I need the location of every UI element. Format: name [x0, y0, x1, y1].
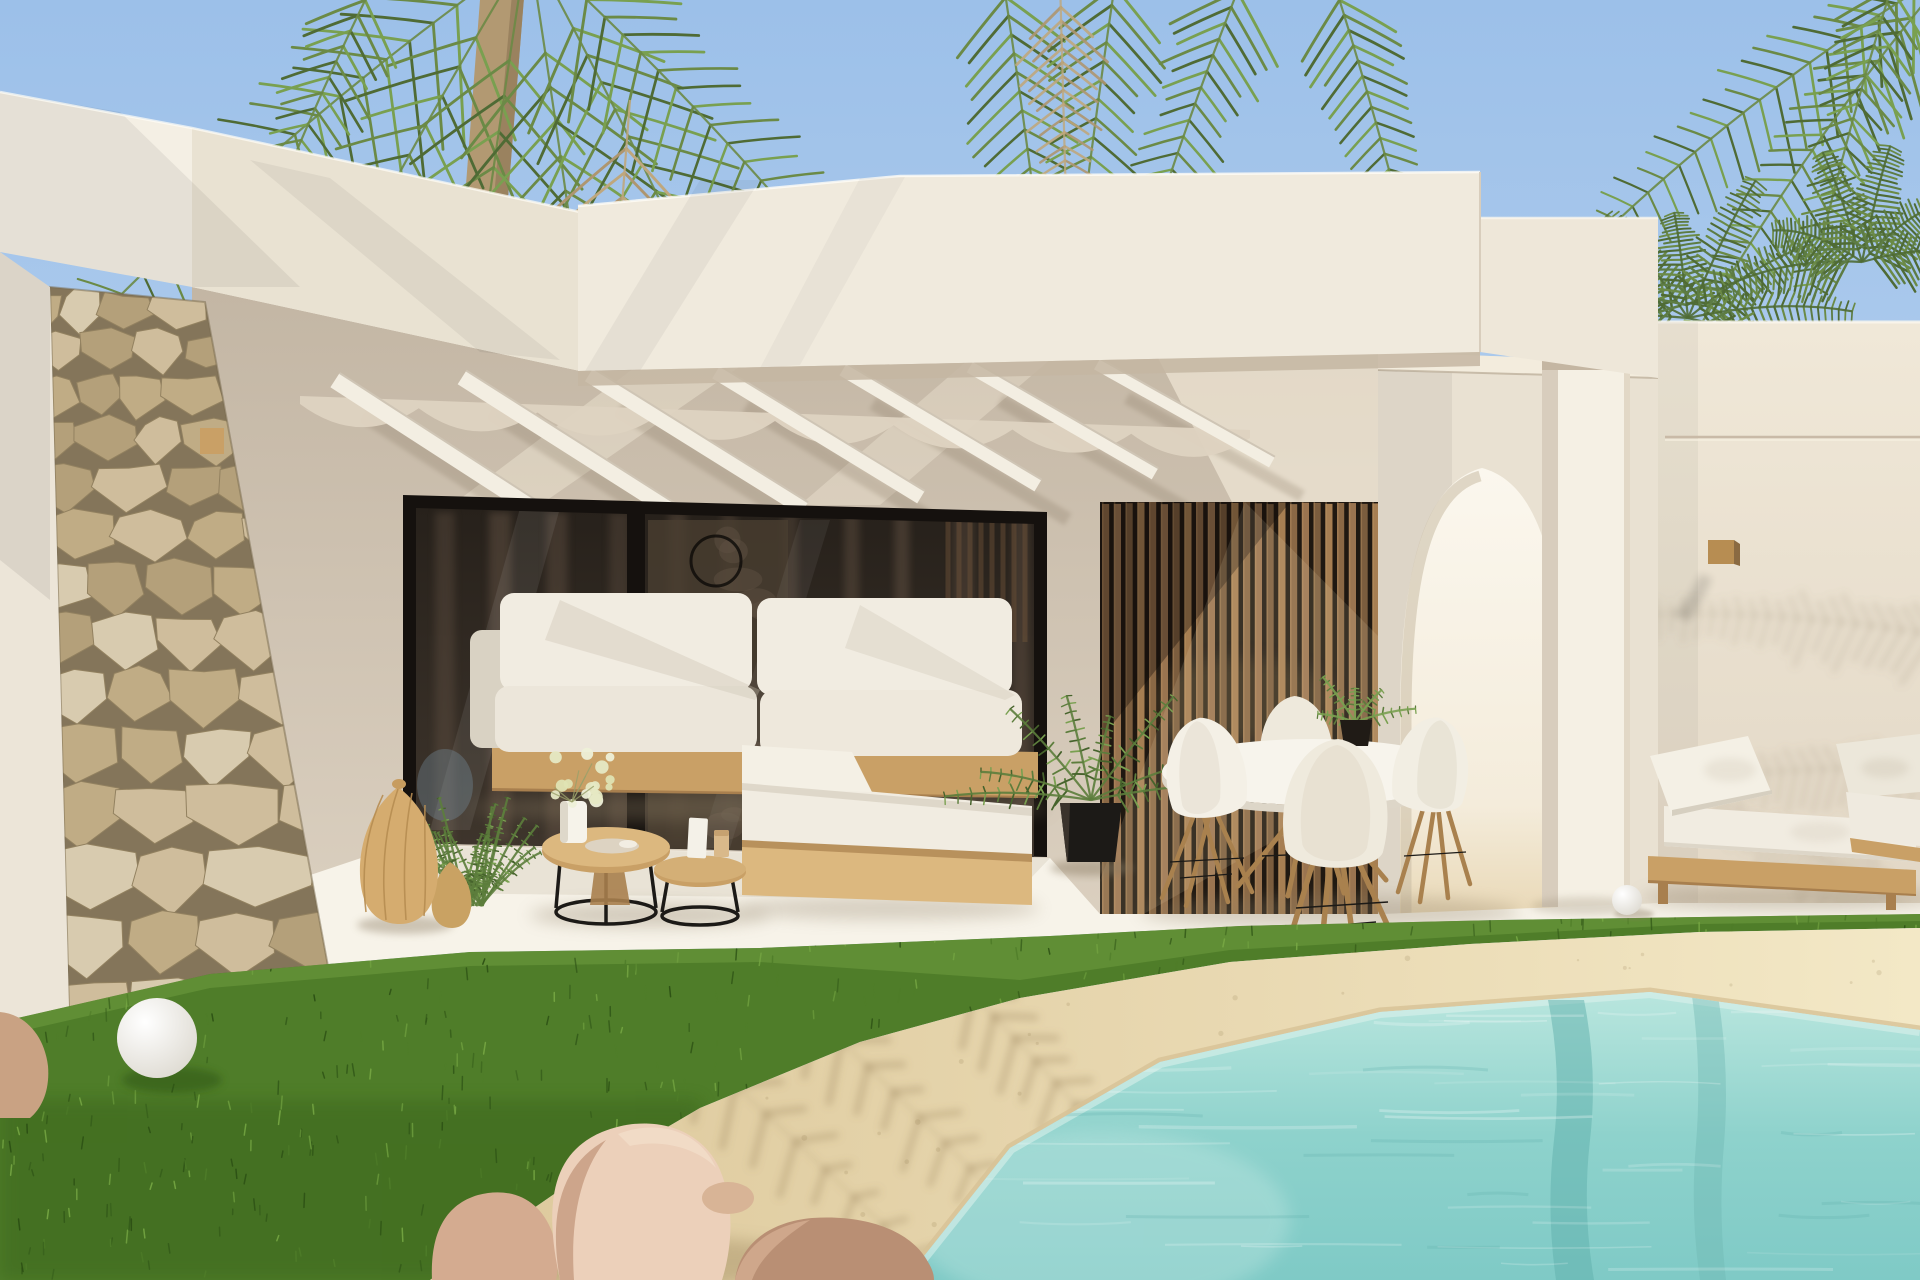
rock-small: [702, 1182, 754, 1214]
sofa-seat-cushion: [495, 686, 757, 752]
upper-wall-block: [1480, 218, 1658, 378]
sofa-seat-cushion: [760, 690, 1022, 756]
stone-wall-sconce: [200, 428, 224, 454]
sphere-lamp-large: [117, 998, 197, 1078]
corner-column: [1542, 358, 1630, 907]
villa-pool-render: [0, 0, 1920, 1280]
column-reflection: [1548, 1000, 1594, 1280]
sphere-lamp-small: [1612, 885, 1642, 915]
table-card: [687, 818, 708, 859]
render-canvas: [0, 0, 1920, 1280]
